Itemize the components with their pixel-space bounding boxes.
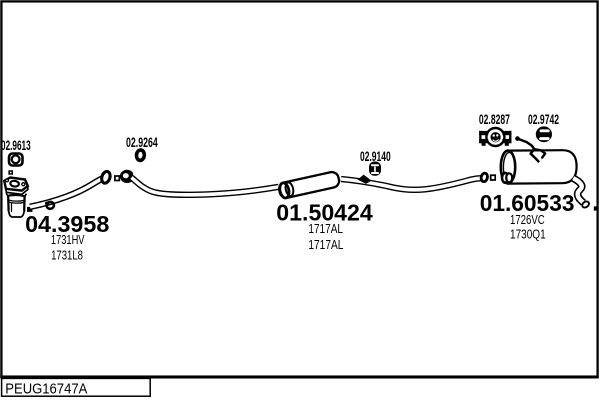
svg-text:02.9264: 02.9264 [126,134,158,150]
svg-text:02.9613: 02.9613 [1,137,31,153]
svg-text:02.8287: 02.8287 [479,111,510,127]
svg-text:02.9140: 02.9140 [360,148,391,164]
svg-text:1717AL: 1717AL [308,238,343,252]
svg-text:1726VC: 1726VC [510,213,545,227]
svg-text:1730Q1: 1730Q1 [510,227,546,241]
svg-text:PEUG16747A: PEUG16747A [5,381,88,398]
svg-text:1731L8: 1731L8 [51,248,83,262]
svg-text:1717AL: 1717AL [308,222,343,236]
svg-text:1731HV: 1731HV [51,233,85,247]
svg-text:02.9742: 02.9742 [528,111,559,127]
